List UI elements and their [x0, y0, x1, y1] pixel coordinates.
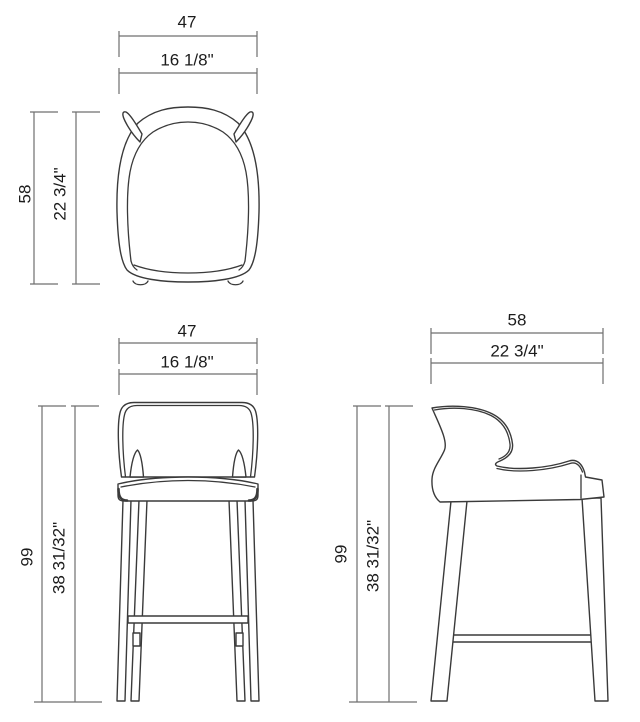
front-view-front-leg-right [245, 500, 259, 701]
front-view-leg-block-right [236, 633, 243, 646]
dim-label-side-depth-in: 22 3/4" [490, 343, 543, 360]
dim-label-top-depth-in: 22 3/4" [52, 167, 69, 220]
dim-label-side-depth-cm: 58 [508, 312, 527, 329]
chair-front-view-drawing [117, 403, 259, 702]
front-view-leg-block-left [133, 633, 140, 646]
chair-top-view-drawing [117, 107, 259, 285]
front-view-back-leg-left [131, 500, 147, 701]
chair-side-view-drawing [431, 406, 608, 701]
side-view-dimension-lines [349, 328, 603, 702]
dim-label-front-height-in: 38 31/32" [51, 522, 68, 594]
dim-label-front-height-cm: 99 [19, 548, 36, 567]
dim-label-side-height-in: 38 31/32" [365, 520, 382, 592]
dim-label-front-width-cm: 47 [178, 323, 197, 340]
dim-label-front-width-in: 16 1/8" [160, 354, 213, 371]
dim-label-side-height-cm: 99 [333, 545, 350, 564]
side-view-body [432, 406, 604, 502]
front-view-front-leg-left [117, 500, 131, 701]
line-art [0, 0, 640, 722]
dim-label-top-width-cm: 47 [178, 14, 197, 31]
side-view-rear-leg [582, 498, 608, 701]
top-view-foot-right [228, 281, 243, 285]
front-view-back-leg-right [229, 500, 245, 701]
technical-drawing-sheet: 47 16 1/8" 58 22 3/4" 47 16 1/8" 99 38 3… [0, 0, 640, 722]
top-view-foot-left [133, 281, 148, 285]
side-view-front-leg [431, 501, 467, 701]
dim-label-top-width-in: 16 1/8" [160, 52, 213, 69]
dim-label-top-depth-cm: 58 [17, 185, 34, 204]
side-view-footrest [450, 635, 592, 642]
front-view-footrest [128, 616, 248, 623]
